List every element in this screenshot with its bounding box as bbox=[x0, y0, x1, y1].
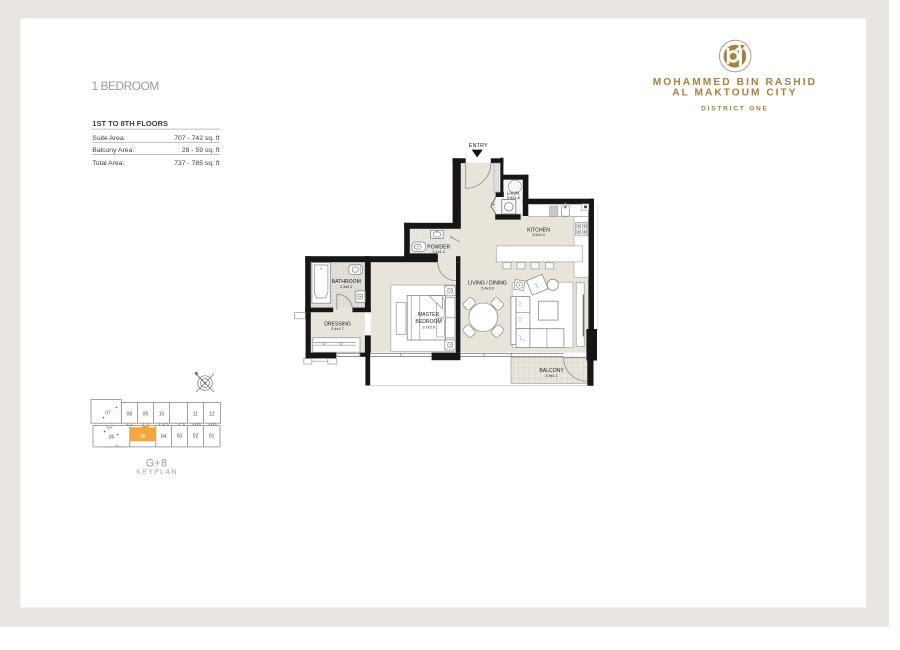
svg-text:10: 10 bbox=[159, 411, 165, 417]
svg-text:12: 12 bbox=[209, 411, 215, 417]
svg-text:AL MAKTOUM CITY: AL MAKTOUM CITY bbox=[672, 88, 797, 99]
svg-text:ENTRY: ENTRY bbox=[469, 143, 488, 149]
svg-text:707 - 742 sq. ft: 707 - 742 sq. ft bbox=[174, 135, 219, 142]
svg-text:11: 11 bbox=[193, 411, 198, 417]
svg-text:2.4x1.7: 2.4x1.7 bbox=[331, 327, 343, 331]
svg-text:01: 01 bbox=[209, 433, 215, 439]
svg-text:MOHAMMED BIN RASHID: MOHAMMED BIN RASHID bbox=[653, 77, 817, 88]
svg-text:03: 03 bbox=[177, 433, 183, 439]
svg-text:Total Area:: Total Area: bbox=[92, 160, 124, 167]
svg-text:1 BEDROOM: 1 BEDROOM bbox=[92, 79, 159, 93]
svg-text:02: 02 bbox=[193, 433, 199, 439]
svg-text:2.1x1.2: 2.1x1.2 bbox=[432, 250, 444, 254]
svg-text:04: 04 bbox=[161, 434, 167, 440]
svg-text:07: 07 bbox=[105, 411, 111, 417]
svg-text:Suite Area:: Suite Area: bbox=[92, 135, 125, 142]
svg-text:1ST TO 8TH FLOORS: 1ST TO 8TH FLOORS bbox=[92, 119, 168, 128]
svg-text:06: 06 bbox=[109, 435, 115, 441]
svg-text:3.7x3.9: 3.7x3.9 bbox=[422, 325, 434, 329]
svg-text:DISTRICT ONE: DISTRICT ONE bbox=[701, 106, 769, 113]
svg-text:LAUN.: LAUN. bbox=[507, 191, 521, 196]
svg-text:MASTER: MASTER bbox=[418, 312, 440, 318]
svg-text:08: 08 bbox=[127, 411, 133, 417]
svg-text:KEYPLAN: KEYPLAN bbox=[136, 469, 177, 476]
svg-text:09: 09 bbox=[143, 411, 149, 417]
svg-text:BEDROOM: BEDROOM bbox=[415, 319, 441, 325]
svg-text:3.9x1.1: 3.9x1.1 bbox=[545, 374, 557, 378]
svg-text:5.4x3.9: 5.4x3.9 bbox=[481, 286, 493, 290]
svg-text:N: N bbox=[203, 381, 206, 386]
svg-text:G+8: G+8 bbox=[146, 458, 167, 470]
svg-text:Balcony Area:: Balcony Area: bbox=[92, 147, 134, 154]
svg-text:2.3x2.1: 2.3x2.1 bbox=[340, 285, 352, 289]
svg-text:28 - 59 sq. ft: 28 - 59 sq. ft bbox=[182, 147, 220, 154]
svg-text:05: 05 bbox=[140, 434, 146, 440]
svg-text:737 - 785 sq. ft: 737 - 785 sq. ft bbox=[174, 160, 219, 167]
svg-text:3.9x2.4: 3.9x2.4 bbox=[532, 233, 544, 237]
